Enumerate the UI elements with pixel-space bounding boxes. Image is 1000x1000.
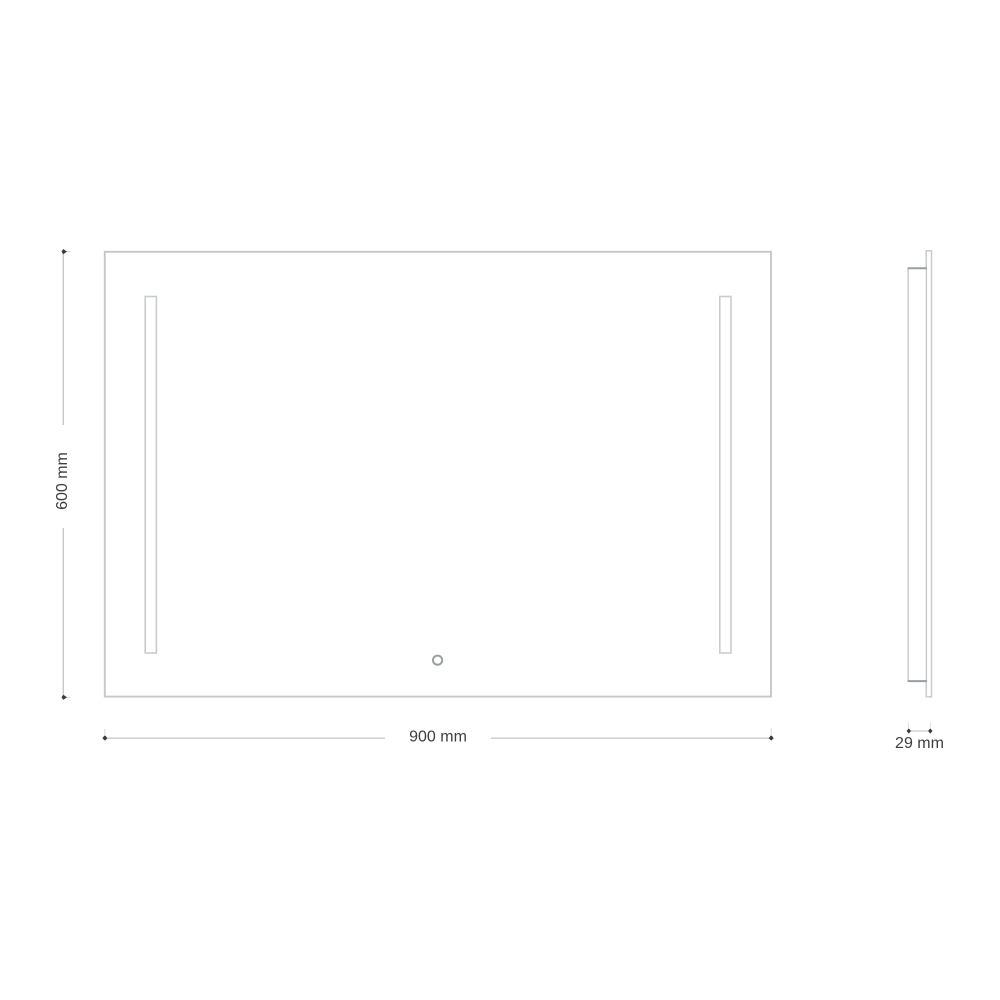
svg-text:900 mm: 900 mm (409, 729, 467, 746)
svg-text:600 mm: 600 mm (54, 452, 71, 510)
svg-text:29 mm: 29 mm (895, 735, 944, 752)
